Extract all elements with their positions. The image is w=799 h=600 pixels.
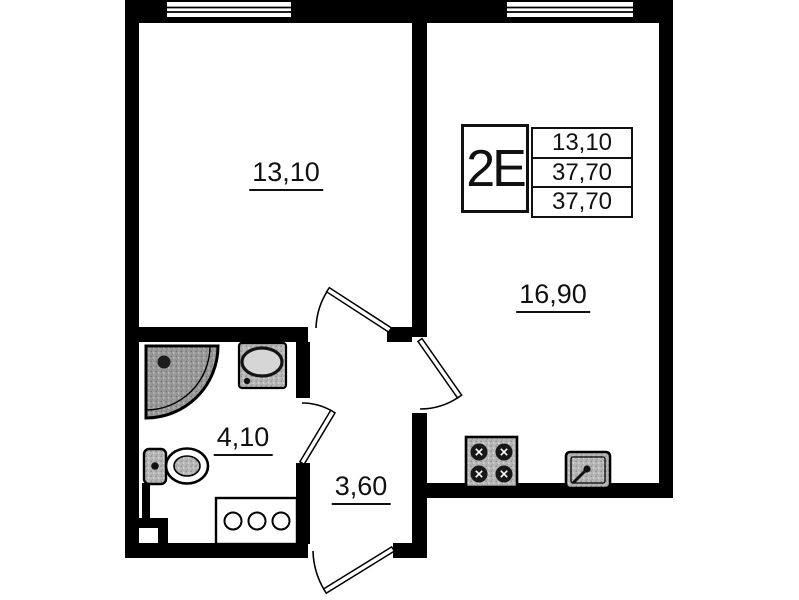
room-area-value: 16,90 bbox=[516, 279, 590, 313]
apartment-type-label: 2Е bbox=[461, 124, 529, 213]
room-area-label-living: 13,10 bbox=[249, 158, 323, 186]
wall-segment-right bbox=[659, 0, 673, 498]
washbasin-icon bbox=[239, 343, 286, 388]
wall-segment-bathroom-right-upper bbox=[296, 342, 310, 398]
cabinet-three-knobs-icon bbox=[216, 498, 297, 544]
stove-four-burner-icon bbox=[466, 437, 517, 487]
wall-segment-bathroom-top bbox=[139, 327, 308, 342]
door-swing-icon-entrance bbox=[313, 547, 394, 593]
wall-segment-bottom-left bbox=[125, 543, 308, 558]
legend-value-row: 37,70 bbox=[531, 157, 633, 189]
legend-values-column: 13,10 37,70 37,70 bbox=[531, 124, 633, 213]
window-icon bbox=[507, 2, 633, 17]
room-area-label-bathroom: 4,10 bbox=[214, 423, 273, 451]
wall-segment-middle-upper bbox=[412, 23, 427, 337]
door-swing-icon-living bbox=[316, 288, 391, 332]
legend-value-row: 13,10 bbox=[531, 127, 633, 159]
room-area-value: 3,60 bbox=[332, 471, 391, 505]
room-area-label-hallway: 3,60 bbox=[332, 472, 391, 500]
door-swing-icon-bathroom bbox=[300, 403, 335, 464]
floorplan-canvas: 13,10 16,90 4,10 3,60 2Е 13,10 37,70 37,… bbox=[0, 0, 799, 600]
shower-tray-icon bbox=[146, 346, 218, 418]
wall-segment-shaft-right bbox=[158, 528, 168, 544]
shower-drain-icon bbox=[158, 356, 171, 369]
kitchen-sink-icon bbox=[566, 452, 610, 488]
wall-segment-kitchen-bottom bbox=[427, 483, 673, 498]
room-area-value: 4,10 bbox=[214, 422, 273, 456]
room-area-value: 13,10 bbox=[249, 157, 323, 191]
door-swing-icon-kitchen bbox=[418, 339, 462, 409]
wall-segment-shaft-top bbox=[139, 518, 168, 528]
floorplan-svg bbox=[0, 0, 799, 600]
legend-value-row: 37,70 bbox=[531, 186, 633, 218]
wall-segment-middle-lower bbox=[412, 413, 427, 558]
toilet-icon bbox=[144, 449, 208, 485]
window-icon bbox=[167, 2, 291, 17]
room-area-label-kitchen-living: 16,90 bbox=[516, 280, 590, 308]
wall-segment-duct bbox=[142, 483, 150, 520]
wall-segment-left bbox=[125, 0, 139, 558]
apartment-legend-table: 2Е 13,10 37,70 37,70 bbox=[461, 124, 633, 213]
